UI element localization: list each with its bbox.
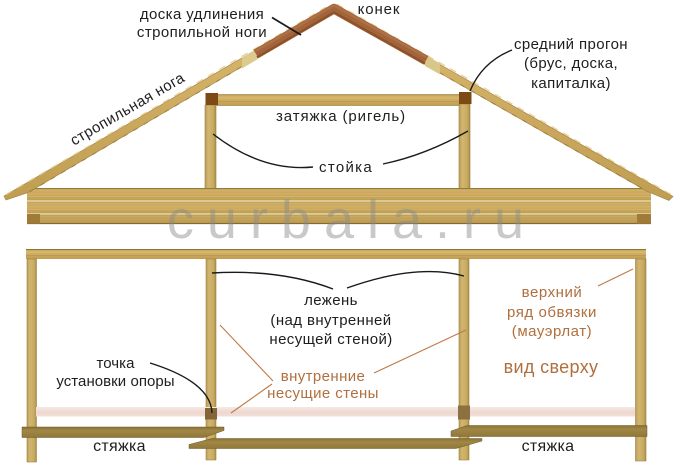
svg-text:curbala.ru: curbala.ru [167, 190, 537, 250]
